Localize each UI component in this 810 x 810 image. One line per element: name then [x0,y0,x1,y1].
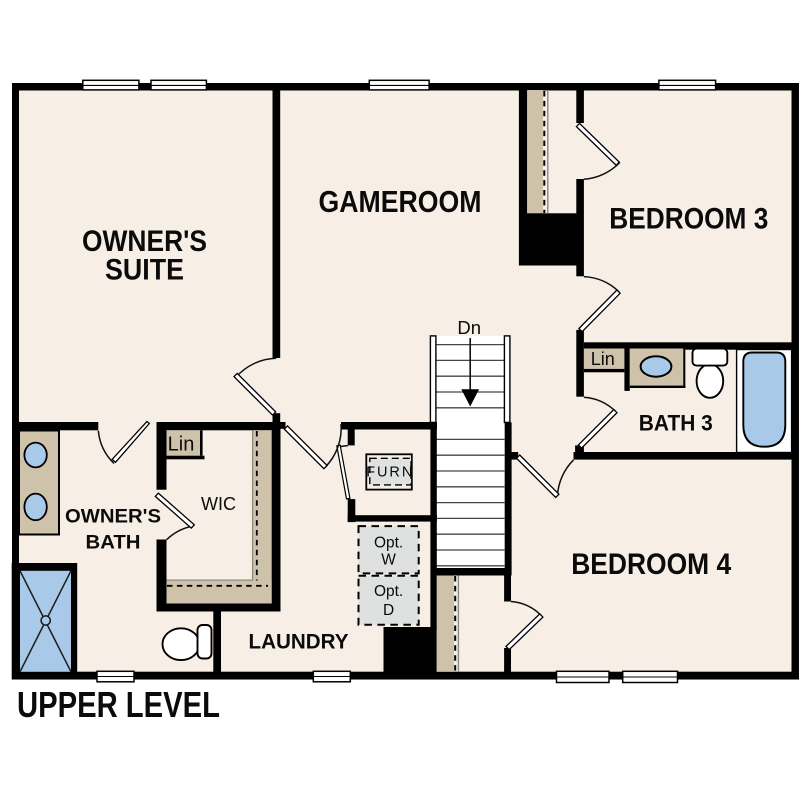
svg-text:BATH: BATH [86,532,141,554]
svg-text:SUITE: SUITE [105,253,184,286]
svg-text:UPPER LEVEL: UPPER LEVEL [17,684,220,725]
svg-text:D: D [383,602,394,619]
svg-text:OWNER'S: OWNER'S [65,505,161,527]
svg-text:LAUNDRY: LAUNDRY [249,630,349,653]
svg-text:Lin: Lin [168,433,195,455]
svg-text:Dn: Dn [457,317,481,338]
svg-text:BEDROOM 4: BEDROOM 4 [571,548,731,581]
svg-text:FURN: FURN [366,464,412,480]
svg-text:Opt.: Opt. [374,583,403,600]
svg-text:WIC: WIC [201,494,236,514]
svg-text:Lin: Lin [591,349,615,369]
svg-text:GAMEROOM: GAMEROOM [319,184,482,219]
svg-text:Opt.: Opt. [374,534,403,551]
svg-text:W: W [381,551,396,568]
svg-text:BATH 3: BATH 3 [639,411,713,436]
svg-text:BEDROOM 3: BEDROOM 3 [609,203,768,236]
